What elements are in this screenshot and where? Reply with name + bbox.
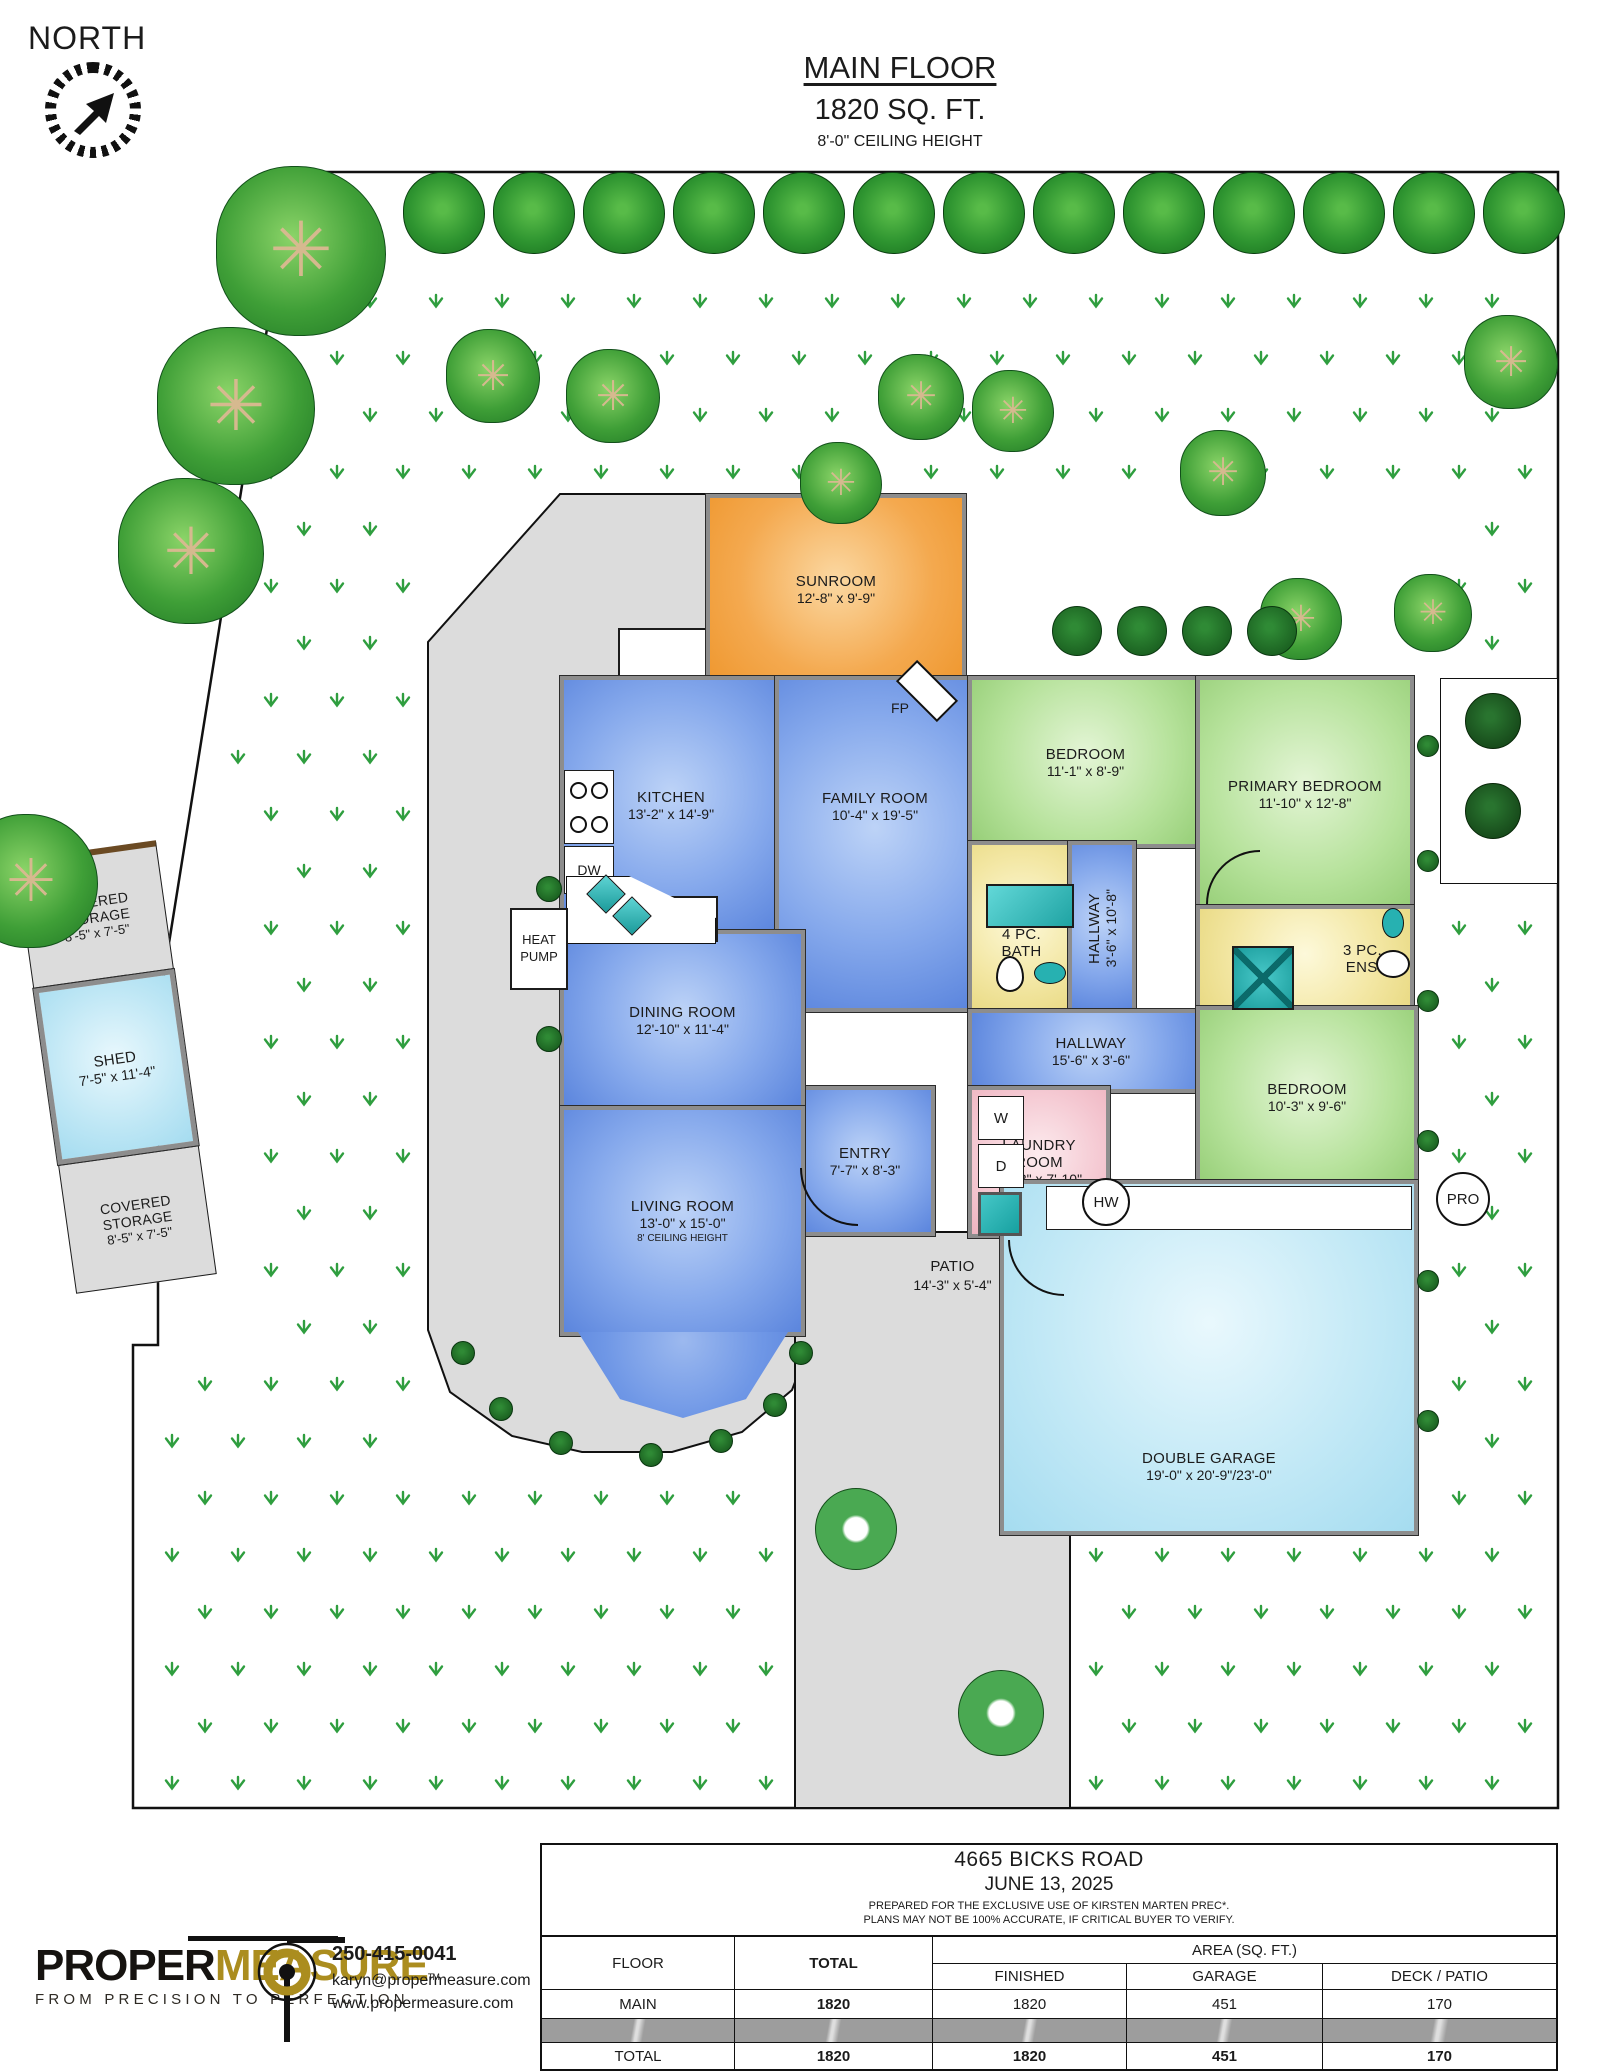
room-kitchen-dims: 13'-2" x 14'-9" xyxy=(628,806,714,822)
tree-icon: ✳ xyxy=(118,478,264,624)
fireplace-label-block: FP xyxy=(880,700,920,718)
room-family: FAMILY ROOM 10'-4" x 19'-5" xyxy=(775,676,975,1012)
summary-table-header: 4665 BICKS ROAD JUNE 13, 2025 PREPARED F… xyxy=(542,1845,1556,1937)
col-garage: GARAGE xyxy=(1126,1963,1322,1989)
room-kitchen-label: KITCHEN xyxy=(637,789,705,806)
tree-icon xyxy=(673,172,755,254)
tree-icon: ✳ xyxy=(1394,574,1472,652)
spacer-cell xyxy=(734,2018,932,2042)
bush-icon xyxy=(1182,606,1232,656)
tree-icon: ✳ xyxy=(446,329,540,423)
address: 4665 BICKS ROAD xyxy=(542,1848,1556,1872)
bush-icon xyxy=(1417,1130,1439,1152)
row-main-garage: 451 xyxy=(1126,1989,1322,2018)
row-main-floor: MAIN xyxy=(542,1989,734,2018)
ens-sink-icon xyxy=(1382,908,1404,938)
north-label: NORTH xyxy=(28,20,146,57)
bush-icon xyxy=(763,1393,787,1417)
room-bedroom-top: BEDROOM 11'-1" x 8'-9" xyxy=(968,676,1203,848)
dishwasher-label: DW xyxy=(577,862,600,878)
bush-icon xyxy=(1417,1270,1439,1292)
north-arrow-icon xyxy=(45,62,141,158)
hot-water-label: HW xyxy=(1094,1194,1119,1211)
room-bedroom-br: BEDROOM 10'-3" x 9'-6" xyxy=(1196,1006,1418,1188)
bush-icon xyxy=(639,1443,663,1467)
spacer-cell xyxy=(932,2018,1126,2042)
bush-icon xyxy=(789,1341,813,1365)
room-entry-label: ENTRY xyxy=(839,1145,891,1162)
pro-marker: PRO xyxy=(1436,1172,1490,1226)
laundry-sink-icon xyxy=(978,1192,1022,1236)
tree-icon xyxy=(1465,693,1521,749)
heat-pump-label2: PUMP xyxy=(520,949,558,966)
room-bedroom-top-label: BEDROOM xyxy=(1046,746,1126,763)
tree-icon xyxy=(583,172,665,254)
room-bath: 4 PC. BATH xyxy=(968,841,1075,1016)
room-bedroom-top-dims: 11'-1" x 8'-9" xyxy=(1047,763,1124,779)
hallway-v-label: HALLWAY xyxy=(1086,893,1103,964)
room-primary-dims: 11'-10" x 12'-8" xyxy=(1259,795,1352,811)
room-ens-label1: 3 PC. xyxy=(1343,942,1382,959)
col-area: AREA (SQ. FT.) xyxy=(932,1937,1556,1963)
room-hallway-vertical: HALLWAY 3'-6" x 10'-8" xyxy=(1068,841,1136,1016)
tree-icon xyxy=(1393,172,1475,254)
brand-word-proper: PROPER xyxy=(35,1941,215,1990)
row-total-floor: TOTAL xyxy=(542,2042,734,2069)
room-bedroom-br-dims: 10'-3" x 9'-6" xyxy=(1268,1098,1346,1114)
room-living-note: 8' CEILING HEIGHT xyxy=(637,1233,728,1244)
bathtub-icon xyxy=(986,884,1074,928)
tree-icon xyxy=(1213,172,1295,254)
shower-icon xyxy=(1232,946,1294,1010)
summary-table: 4665 BICKS ROAD JUNE 13, 2025 PREPARED F… xyxy=(540,1843,1558,2071)
room-sunroom-dims: 12'-8" x 9'-9" xyxy=(797,590,875,606)
covered-storage-bottom: COVERED STORAGE 8'-5" x 7'-5" xyxy=(58,1145,217,1293)
tree-icon xyxy=(1033,172,1115,254)
tree-icon: ✳ xyxy=(878,354,964,440)
room-entry: ENTRY 7'-7" x 8'-3" xyxy=(795,1086,935,1236)
bush-icon xyxy=(1417,1410,1439,1432)
tree-icon: ✳ xyxy=(800,442,882,524)
tree-icon xyxy=(1123,172,1205,254)
bush-icon xyxy=(1417,850,1439,872)
room-hallway-horizontal: HALLWAY 15'-6" x 3'-6" xyxy=(968,1009,1214,1093)
bush-icon xyxy=(536,1026,562,1052)
bush-icon xyxy=(1417,990,1439,1012)
room-bath-label1: 4 PC. xyxy=(1002,926,1041,943)
title-ceiling: 8'-0" CEILING HEIGHT xyxy=(640,133,1160,151)
col-floor: FLOOR xyxy=(542,1937,734,1989)
spacer-cell xyxy=(542,2018,734,2042)
heat-pump-label1: HEAT xyxy=(522,932,556,949)
row-total-total: 1820 xyxy=(734,2042,932,2069)
hot-water-tank: HW xyxy=(1082,1178,1130,1226)
date: JUNE 13, 2025 xyxy=(542,1874,1556,1896)
row-main-total: 1820 xyxy=(734,1989,932,2018)
bath-sink-icon xyxy=(1034,962,1066,984)
title-area: 1820 SQ. FT. xyxy=(640,94,1160,127)
room-living-label: LIVING ROOM xyxy=(631,1198,734,1215)
disclaimer-2: PLANS MAY NOT BE 100% ACCURATE, IF CRITI… xyxy=(542,1913,1556,1927)
col-total: TOTAL xyxy=(734,1937,932,1989)
room-living: LIVING ROOM 13'-0" x 15'-0" 8' CEILING H… xyxy=(560,1106,805,1336)
row-main-deck: 170 xyxy=(1322,1989,1556,2018)
room-bedroom-br-label: BEDROOM xyxy=(1267,1081,1347,1098)
room-dining-label: DINING ROOM xyxy=(629,1004,736,1021)
tree-icon xyxy=(763,172,845,254)
washer-label: W xyxy=(994,1110,1008,1127)
disclaimer-1: PREPARED FOR THE EXCLUSIVE USE OF KIRSTE… xyxy=(542,1899,1556,1913)
room-dining: DINING ROOM 12'-10" x 11'-4" xyxy=(560,930,805,1110)
room-family-dims: 10'-4" x 19'-5" xyxy=(832,807,918,823)
tree-icon: ✳ xyxy=(1180,430,1266,516)
shed: SHED 7'-5" x 11'-4" xyxy=(33,969,198,1165)
room-garage-dims: 19'-0" x 20'-9"/23'-0" xyxy=(1146,1467,1272,1483)
tree-icon: ✳ xyxy=(216,166,386,336)
summary-table-grid: FLOOR TOTAL AREA (SQ. FT.) FINISHED GARA… xyxy=(542,1937,1556,2069)
bush-icon xyxy=(536,876,562,902)
tree-icon xyxy=(815,1488,897,1570)
row-main-finished: 1820 xyxy=(932,1989,1126,2018)
room-dining-dims: 12'-10" x 11'-4" xyxy=(636,1021,729,1037)
spacer-cell xyxy=(1322,2018,1556,2042)
dryer: D xyxy=(978,1144,1024,1188)
tree-icon xyxy=(958,1670,1044,1756)
tree-icon xyxy=(853,172,935,254)
washer: W xyxy=(978,1096,1024,1140)
hallway-h-dims: 15'-6" x 3'-6" xyxy=(1052,1052,1130,1068)
bush-icon xyxy=(1117,606,1167,656)
bush-icon xyxy=(709,1429,733,1453)
tree-icon xyxy=(1303,172,1385,254)
ens-toilet-icon xyxy=(1376,950,1410,978)
room-garage: DOUBLE GARAGE 19'-0" x 20'-9"/23'-0" xyxy=(1000,1180,1418,1535)
tree-icon xyxy=(403,172,485,254)
bush-icon xyxy=(1417,735,1439,757)
pro-label: PRO xyxy=(1447,1191,1480,1208)
tree-icon xyxy=(1465,783,1521,839)
bush-icon xyxy=(451,1341,475,1365)
dryer-label: D xyxy=(996,1158,1007,1175)
tree-icon xyxy=(493,172,575,254)
room-living-dims: 13'-0" x 15'-0" xyxy=(639,1215,725,1231)
tree-icon: ✳ xyxy=(1464,315,1558,409)
floor-plan-page: NORTH MAIN FLOOR 1820 SQ. FT. 8'-0" CEIL… xyxy=(0,0,1600,2071)
hallway-v-dims: 3'-6" x 10'-8" xyxy=(1103,889,1119,967)
tree-icon: ✳ xyxy=(157,327,315,485)
row-total-garage: 451 xyxy=(1126,2042,1322,2069)
toilet-icon xyxy=(996,956,1024,992)
room-garage-label: DOUBLE GARAGE xyxy=(1142,1450,1276,1467)
disclaimers: PREPARED FOR THE EXCLUSIVE USE OF KIRSTE… xyxy=(542,1899,1556,1928)
tree-icon xyxy=(1483,172,1565,254)
row-total-finished: 1820 xyxy=(932,2042,1126,2069)
room-sunroom-label: SUNROOM xyxy=(796,573,876,590)
room-family-label: FAMILY ROOM xyxy=(822,790,928,807)
bush-icon xyxy=(489,1397,513,1421)
bush-icon xyxy=(549,1431,573,1455)
col-finished: FINISHED xyxy=(932,1963,1126,1989)
crosshair-logo-icon xyxy=(245,1928,365,2048)
tree-icon: ✳ xyxy=(566,349,660,443)
tree-icon xyxy=(943,172,1025,254)
spacer-cell xyxy=(1126,2018,1322,2042)
hallway-h-label: HALLWAY xyxy=(1055,1035,1126,1052)
title-floor: MAIN FLOOR xyxy=(640,50,1160,86)
plan-title: MAIN FLOOR 1820 SQ. FT. 8'-0" CEILING HE… xyxy=(640,50,1160,151)
stove-icon xyxy=(564,770,614,844)
col-deck: DECK / PATIO xyxy=(1322,1963,1556,1989)
fireplace-label: FP xyxy=(891,700,909,716)
bush-icon xyxy=(1052,606,1102,656)
heat-pump: HEAT PUMP xyxy=(510,908,568,990)
row-total-deck: 170 xyxy=(1322,2042,1556,2069)
room-primary-label: PRIMARY BEDROOM xyxy=(1228,778,1382,795)
bush-icon xyxy=(1247,606,1297,656)
tree-icon: ✳ xyxy=(972,370,1054,452)
